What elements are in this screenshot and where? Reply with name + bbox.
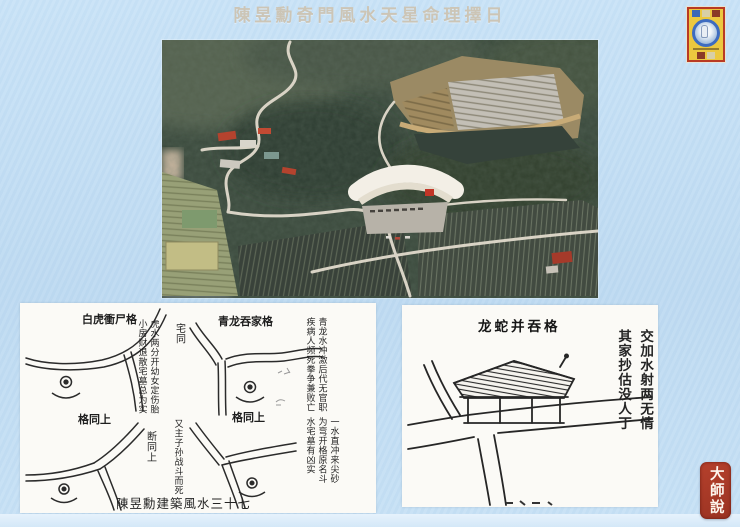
diagram1-verse-left: 小房财退散宅墓总为实 xyxy=(137,319,146,414)
house-sketch xyxy=(454,354,574,423)
diagram2-verse-left: 疾病人频死拳争兼败亡 xyxy=(305,317,314,412)
diagram2-title: 青龙吞家格 xyxy=(218,313,273,329)
fengshui-diagrams-figure: 白虎衝尸格 青龙吞家格 宅同 虎水两分开幼女定伤胎 小房财退散宅墓总为实 青龙水… xyxy=(20,303,376,513)
presentation-slide: 陳昱勳奇門風水天星命理擇日 xyxy=(0,0,740,527)
diagram3-title: 格同上 xyxy=(78,411,111,427)
red-seal: 大師說 xyxy=(700,462,731,519)
diagram1-title: 白虎衝尸格 xyxy=(82,311,137,327)
aerial-photo xyxy=(162,40,598,298)
right-verse-left: 其家抄估没人丁 xyxy=(616,329,630,431)
figure-caption: 陳昱勳建築風水三十七 xyxy=(116,493,251,512)
main-white-building xyxy=(357,174,455,240)
seal-text: 大師說 xyxy=(708,466,723,516)
right-figure-title: 龙蛇并吞格 xyxy=(478,315,561,335)
thangka-emblem xyxy=(687,7,725,62)
emblem-square-icon xyxy=(697,52,705,59)
diagram4-verse-3: 水宅墓有凶实 xyxy=(305,417,314,474)
right-verse-right: 交加水射两无情 xyxy=(638,329,652,431)
diagram1-verse-right: 虎水两分开幼女定伤胎 xyxy=(149,319,158,414)
diagram2-verse-right: 青龙水冲激后代无官职 xyxy=(317,317,326,412)
emblem-square-icon xyxy=(712,10,720,17)
diagram4-verse-2: 为弯开格原名斗 xyxy=(317,417,326,484)
emblem-text-line xyxy=(693,48,719,50)
cutoff-caption-marks xyxy=(506,501,552,505)
diagram4-title: 格同上 xyxy=(232,409,265,425)
emblem-square-icon xyxy=(707,52,715,59)
diagram4-verse-1: 一水直冲来尖砂 xyxy=(329,417,338,484)
red-sign xyxy=(425,189,434,196)
diagram1-side-note: 宅同 xyxy=(173,323,184,344)
diagram3-verse: 又主子孙战斗而死 xyxy=(173,419,182,495)
slide-title: 陳昱勳奇門風水天星命理擇日 xyxy=(0,1,740,26)
emblem-square-icon xyxy=(702,10,710,17)
deity-figure-icon xyxy=(702,26,707,37)
handwritten-scribbles xyxy=(276,368,290,405)
emblem-top-row xyxy=(689,10,723,17)
footer-band xyxy=(0,514,740,527)
mandala-icon xyxy=(692,19,720,47)
aerial-photo-art xyxy=(162,40,598,298)
emblem-square-icon xyxy=(692,10,700,17)
emblem-bottom-row xyxy=(689,52,723,59)
diagram3-note: 断同上 xyxy=(144,431,155,463)
dragon-snake-figure: 龙蛇并吞格 交加水射两无情 其家抄估没人丁 xyxy=(402,305,658,507)
